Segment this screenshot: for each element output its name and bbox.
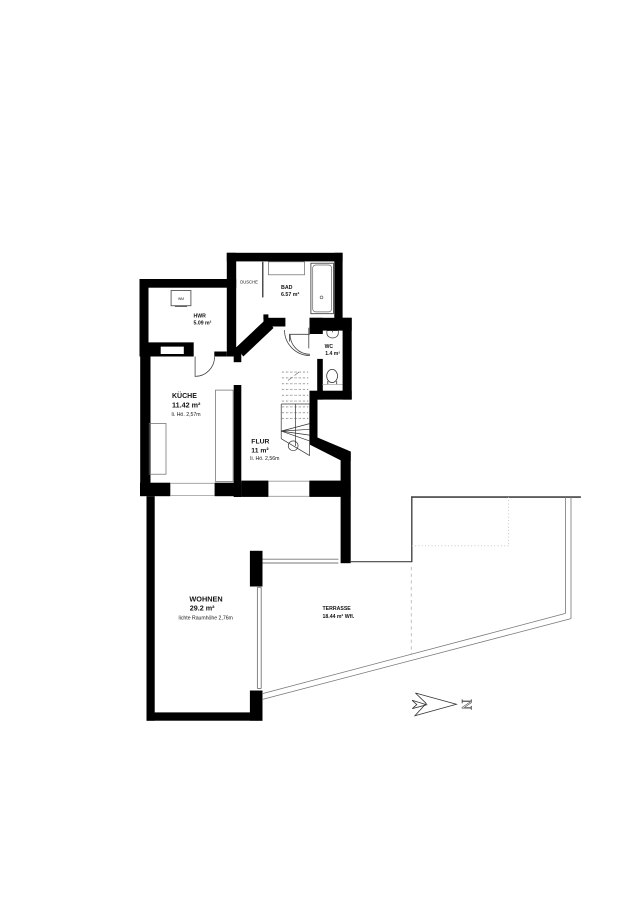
svg-text:lichte Raumhöhe 2,76m: lichte Raumhöhe 2,76m xyxy=(179,616,233,622)
svg-text:11 m²: 11 m² xyxy=(251,447,269,454)
svg-text:li. Hö. 2,57m: li. Hö. 2,57m xyxy=(172,412,201,418)
svg-text:HWR: HWR xyxy=(194,314,207,320)
svg-text:li. Hö. 2,56m: li. Hö. 2,56m xyxy=(250,456,279,462)
svg-text:6.57 m²: 6.57 m² xyxy=(281,292,299,298)
svg-text:N: N xyxy=(458,699,474,710)
svg-text:KÜCHE: KÜCHE xyxy=(172,391,197,400)
svg-text:TERRASSE: TERRASSE xyxy=(323,606,352,612)
svg-text:11.42 m²: 11.42 m² xyxy=(172,401,201,410)
svg-text:DUSCHE: DUSCHE xyxy=(240,279,258,284)
svg-text:1.4 m²: 1.4 m² xyxy=(325,351,340,357)
svg-text:WM: WM xyxy=(178,297,184,301)
svg-text:5.09 m²: 5.09 m² xyxy=(194,320,212,326)
svg-text:WOHNEN: WOHNEN xyxy=(189,595,222,604)
svg-text:29.2 m²: 29.2 m² xyxy=(190,604,215,613)
svg-text:BAD: BAD xyxy=(281,285,293,291)
svg-text:WC: WC xyxy=(325,344,334,350)
svg-text:18.44 m² Wfl.: 18.44 m² Wfl. xyxy=(323,614,355,620)
svg-text:FLUR: FLUR xyxy=(251,439,269,446)
